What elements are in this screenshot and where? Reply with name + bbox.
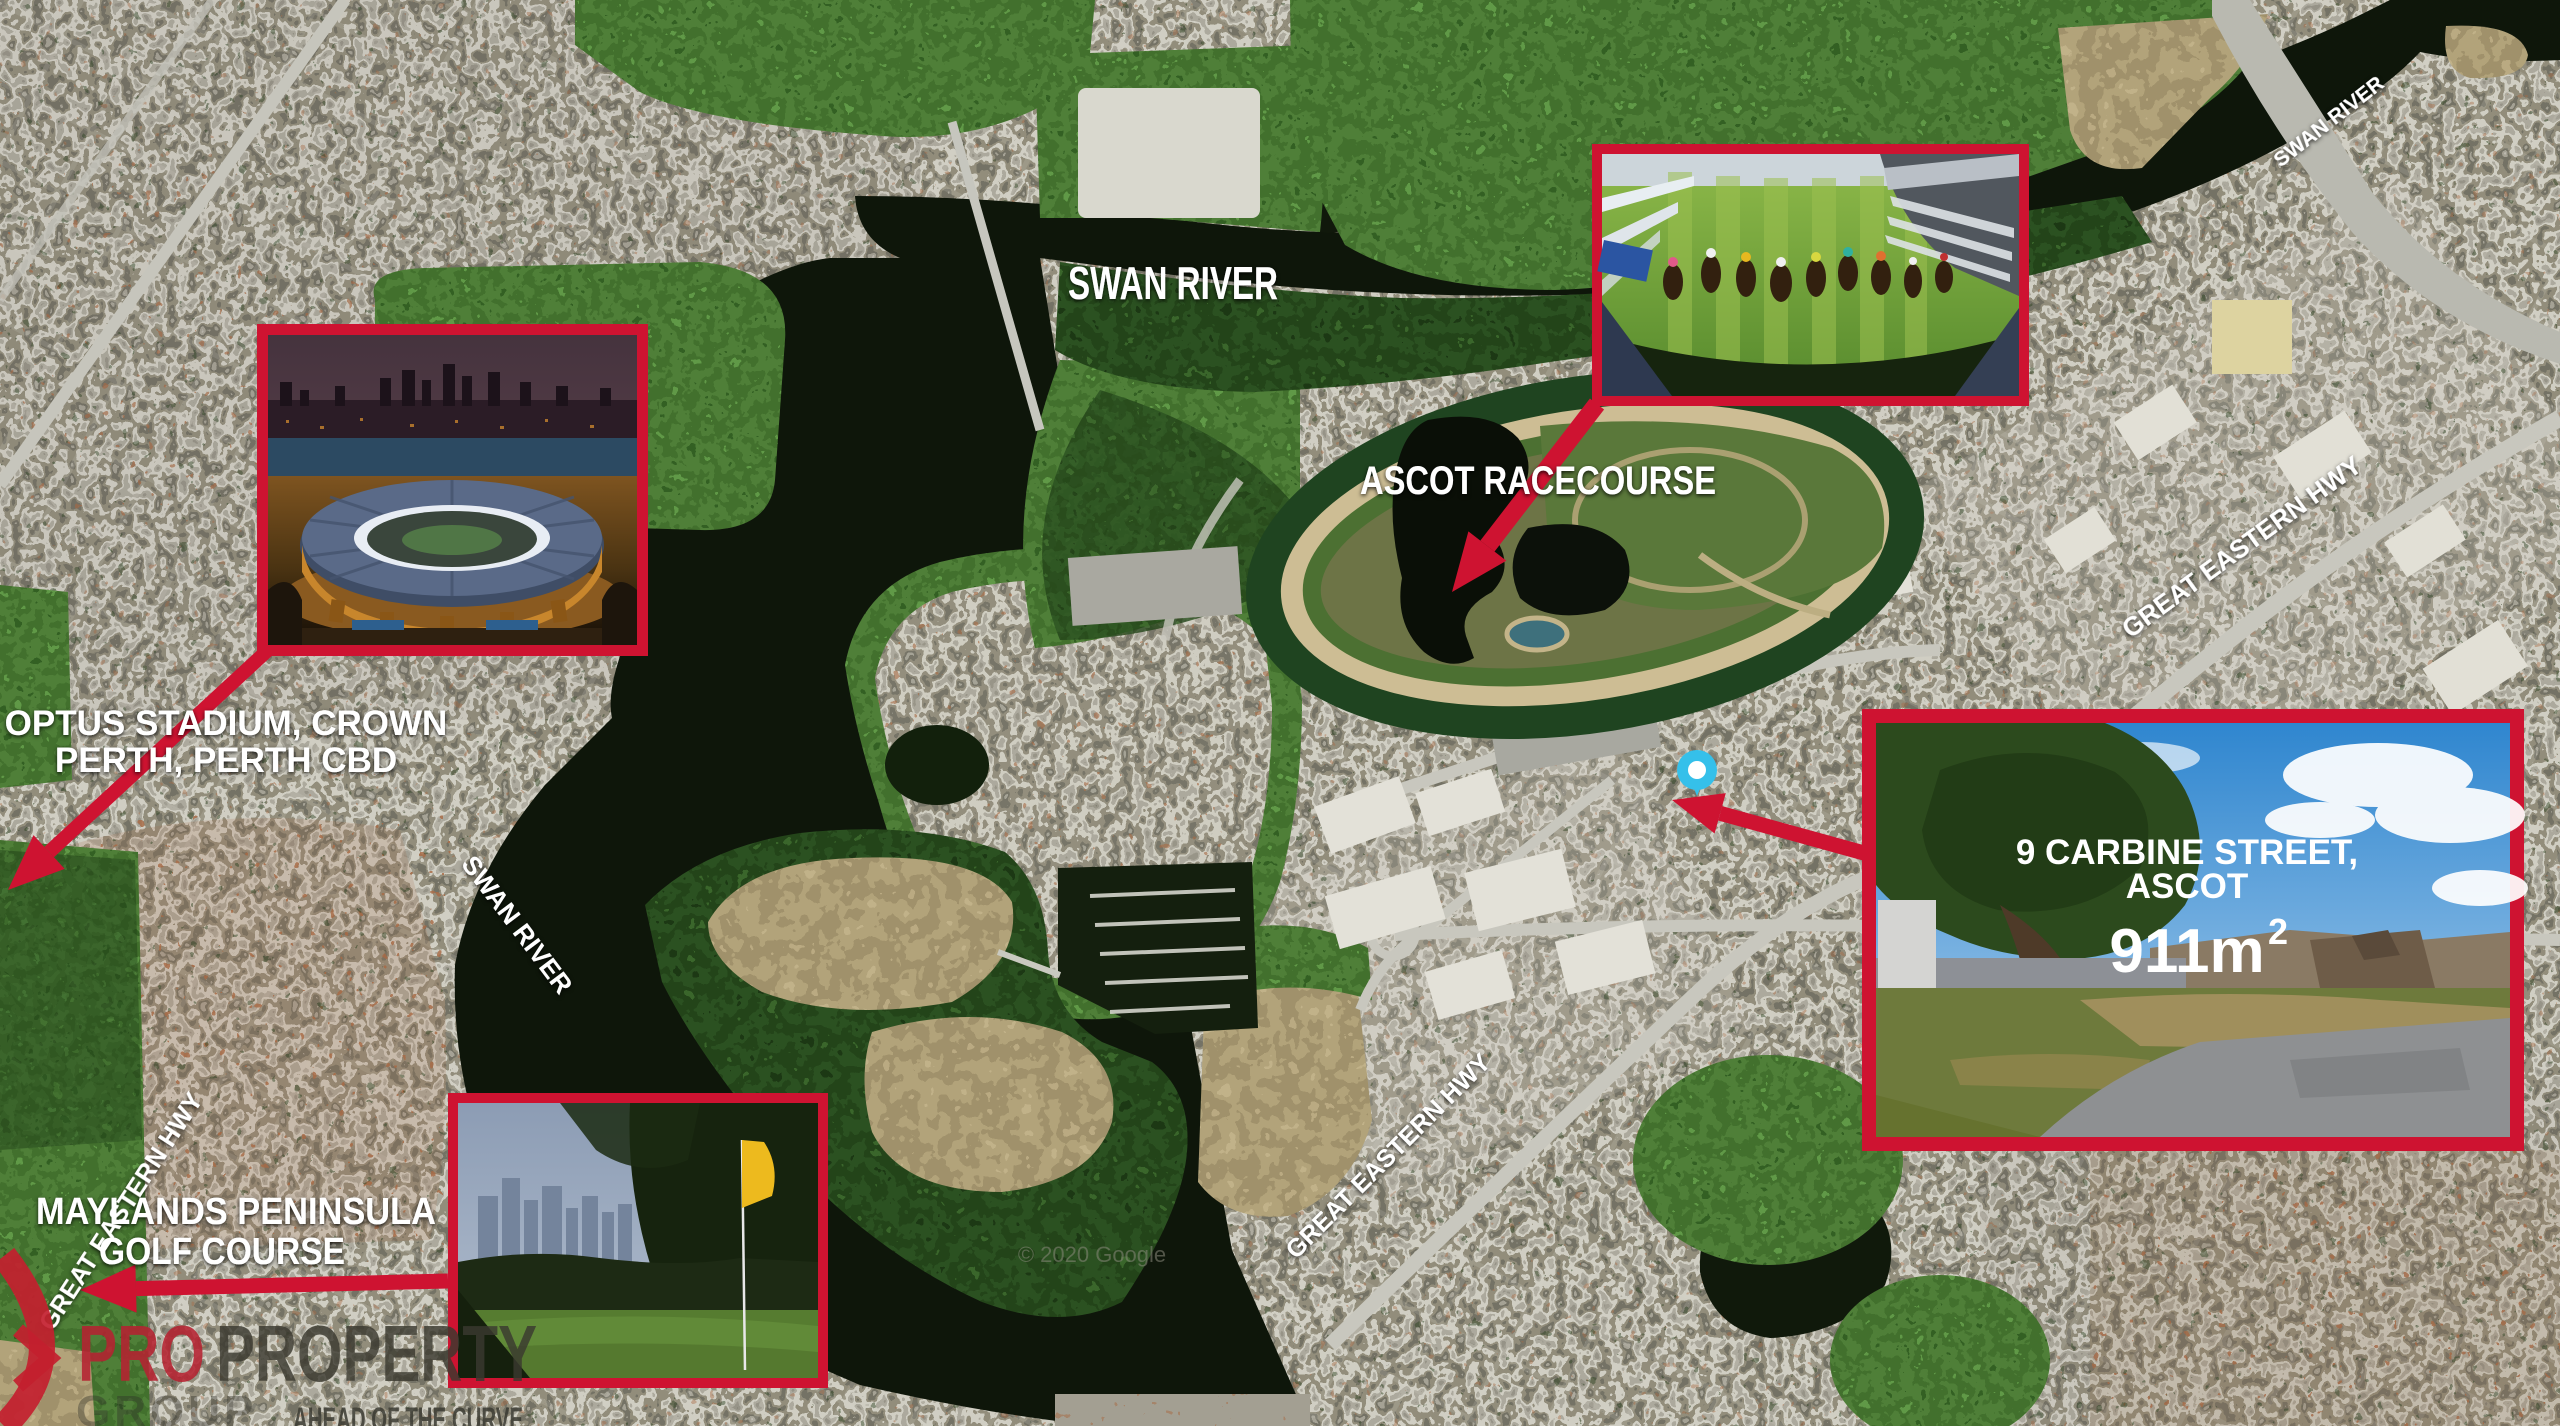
svg-text:911m: 911m: [2109, 917, 2264, 986]
svg-text:ASCOT: ASCOT: [2126, 867, 2249, 906]
svg-text:SWAN RIVER: SWAN RIVER: [1068, 257, 1278, 309]
svg-text:GROUP: GROUP: [76, 1387, 257, 1426]
svg-text:OPTUS STADIUM, CROWN: OPTUS STADIUM, CROWN: [5, 704, 448, 743]
svg-text:PRO: PRO: [78, 1309, 205, 1398]
svg-text:AHEAD OF THE CURVE...: AHEAD OF THE CURVE...: [293, 1401, 540, 1426]
svg-text:PROPERTY: PROPERTY: [216, 1309, 537, 1398]
svg-text:ASCOT RACECOURSE: ASCOT RACECOURSE: [1360, 459, 1716, 503]
svg-text:GOLF COURSE: GOLF COURSE: [99, 1231, 345, 1273]
svg-text:PERTH, PERTH CBD: PERTH, PERTH CBD: [55, 741, 397, 780]
svg-text:2: 2: [2268, 911, 2288, 952]
svg-text:© 2020 Google: © 2020 Google: [1018, 1242, 1166, 1267]
